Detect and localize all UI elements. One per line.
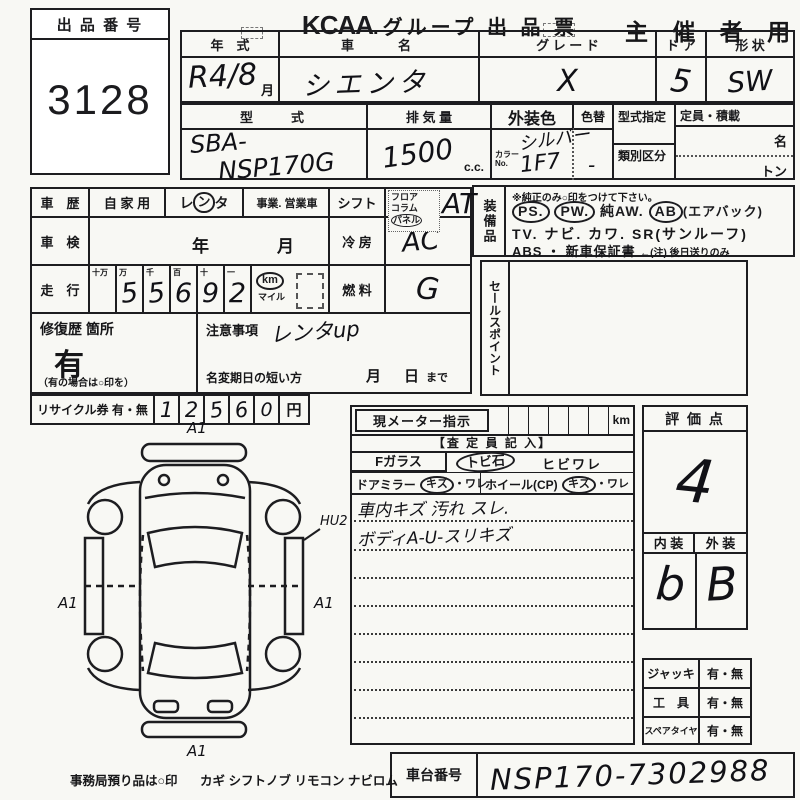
divider [352,472,633,473]
auction-sheet: 出 品 番 号 3128 KCAA.グループ 出 品 票 主 催 者 用 年 式… [0,0,800,800]
jack-label-cell: ジャッキ [644,660,700,689]
car-name-value: シエンタ [301,60,430,103]
model-code-label: 型 式 [182,105,366,130]
displacement-unit: c.c. [464,160,484,174]
capacity-tons-unit: トン [761,161,787,180]
rename-month-unit: 月 [366,365,381,386]
type-class-divider [614,143,674,145]
grade-label: グ レ ー ド [480,32,655,58]
rename-deadline-label: 名変期日の短い方 [206,369,302,386]
shift-option-floor: フロア [391,192,437,203]
equipment-box: 装備品 ※純正のみ○印をつけて下さい。 PS. PW. 純AW. AB(エアバッ… [472,185,795,257]
rename-until-label: まで [426,369,448,385]
shift-value: AT [442,187,476,220]
wheel-rear-left [88,637,122,671]
damage-mark-hu2: HU2 [320,514,347,529]
mileage-header-100k: 十万 [90,266,115,278]
color-cell: 外装色 色替 シルバー カラー No. 1F7 - [490,103,614,180]
spare-tire-label: スペアタイヤ [644,718,698,743]
door-cell: ド ア 5 [655,30,707,103]
wiper-dot-left [159,475,169,485]
rename-day-unit: 日 [404,365,419,386]
mileage-header-100: 百 [171,266,196,278]
wheel-damage-options: キズ・ワレ [562,474,629,494]
meter-unit: km [613,413,630,427]
mileage-cell-100k: 十万 [90,266,117,312]
recolor-value: - [588,153,595,177]
custody-note: 事務局預り品は○印 [70,774,178,788]
jack-label: ジャッキ [644,660,698,687]
exterior-label-cell: 外 装 [695,532,746,554]
fglass-label: Fガラス [352,451,445,470]
score-value: 4 [639,427,751,537]
assessor-comment-1: 車内キズ 汚れ スレ. [357,494,510,522]
chassis-label-cell: 車台番号 [392,754,478,796]
car-name-label: 車 名 [280,32,478,58]
shift-option-column: コラム [391,203,437,214]
aircon-label: 冷 房 [330,218,386,264]
mileage-cell-100: 百 6 [171,266,198,312]
ruled-line [354,633,633,635]
fuel-row: 燃 料 G [328,264,472,314]
ruled-line [354,661,633,663]
mileage-unit-km: km [256,272,284,290]
fglass-label-box: Fガラス [352,451,447,472]
equipment-ps: PS. [512,201,550,223]
fender-front-left [88,482,140,504]
car-body-outline [140,465,250,718]
color-no-value: 1F7 [519,149,562,178]
capacity-divider [676,155,793,157]
mileage-unit-cell: km マイル [252,266,294,312]
inspection-row: 車 検 年 月 [30,216,330,266]
equipment-line3-note: ←(注) 後日送りのみ [640,248,729,259]
meter-cell [529,407,549,434]
displacement-cell: 排 気 量 1500 c.c. [366,103,492,180]
chassis-label: 車台番号 [392,754,476,796]
accessories-table: ジャッキ 有・無 工 具 有・無 スペアタイヤ 有・無 [642,658,752,745]
year-cell: 年 式 R4/8 月 [180,30,280,103]
sales-point-label: セールスポイント [482,262,510,394]
custody-items: カギ シフトノブ リモコン ナビロム [200,774,398,788]
windshield [148,527,242,567]
equipment-ab-note: (エアバック) [683,204,763,219]
equipment-line1: PS. PW. 純AW. AB(エアバック) [512,201,763,223]
meter-cell [569,407,589,434]
hu2-pointer-line [304,529,320,540]
history-label: 車 歴 [32,189,90,216]
repair-cell: 修復歴 箇所 有 （有の場合は○印を） [30,312,198,394]
interior-label: 内 装 [644,532,693,552]
assessor-title: 【査 定 員 記 入】 [352,434,633,451]
capacity-label: 定員・積載 [676,105,793,127]
spare-tire-label-cell: スペアタイヤ [644,718,700,743]
fuel-label: 燃 料 [330,266,386,312]
capacity-persons-unit: 名 [774,131,787,150]
wheel-front-left [88,500,122,534]
grade-cell: グ レ ー ド X [478,30,657,103]
interior-score-value: b [654,556,687,612]
interior-label-cell: 内 装 [644,532,695,554]
equipment-ab: AB [649,201,683,223]
shape-value: SW [706,55,795,107]
mirror-crack-option: ・ワレ [454,478,487,490]
mileage-digit-100k [90,278,115,308]
tools-options-cell: 有・無 [700,689,750,718]
meter-cell [589,407,609,434]
equipment-pw: PW. [554,201,595,223]
shape-label: 形 状 [707,32,793,58]
repair-label: 修復歴 箇所 [40,319,114,339]
mirror-scratch-circled: キズ [420,476,454,494]
type-designation-cell: 型式指定 類別区分 [612,103,676,180]
divider-vertical [480,472,481,493]
tools-options: 有・無 [700,689,750,716]
tail-light-left [154,701,178,712]
meter-label: 現メーター指示 [357,411,487,430]
shift-option-panel: パネル [391,214,422,227]
year-value: R4/8 [187,57,258,96]
stone-chip-circled: トビ石 [455,450,515,474]
tail-light-right [208,701,232,712]
tools-label: 工 具 [644,689,698,716]
mileage-cell-10k: 万 5 [117,266,144,312]
door-label: ド ア [657,32,705,58]
mirror-damage-options: キズ・ワレ [420,474,487,494]
meter-cell [509,407,529,434]
equipment-aw: 純AW. [600,203,644,219]
mileage-digit-10k: 5 [116,277,144,309]
mileage-digit-1: 2 [225,278,250,308]
history-private-option: 自 家 用 [90,189,164,216]
caution-cell: 注意事項 レンタup 名変期日の短い方 月 日 まで [196,312,472,394]
ruled-line [354,577,633,579]
damage-mark-left: A1 [57,594,78,612]
damage-mark-right: A1 [313,594,334,612]
displacement-value: 1500 [380,132,455,175]
wheel-label: ホイール(CP) [485,476,558,493]
hood-line [145,493,245,498]
rear-window [148,643,242,678]
equipment-label: 装備品 [474,187,506,255]
mileage-header-10: 十 [198,266,223,278]
sales-point-box: セールスポイント [480,260,748,396]
exhibit-number-value: 3128 [32,40,168,160]
tools-label-cell: 工 具 [644,689,700,718]
shift-row: シフト フロア コラム パネル AT [328,187,472,218]
assessor-comment-2: ボディA-U-スリキズ [357,520,512,550]
fender-rear-right [248,668,300,690]
year-label: 年 式 [182,32,278,58]
shift-label: シフト [330,189,386,216]
grade-value: X [480,58,655,104]
rear-bumper [142,722,246,737]
divider-vertical [695,554,697,628]
ruled-line [354,549,633,551]
rental-circle-mark: ン [193,192,214,212]
history-rental-option: レンタ [164,189,244,216]
mileage-cell-1k: 千 5 [144,266,171,312]
wheel-crack-option: ・ワレ [596,478,629,490]
mileage-digit-10: 9 [198,278,223,308]
score-box: 評 価 点 4 内 装 外 装 b B [642,405,748,630]
mileage-digit-1k: 5 [143,277,171,309]
inspection-year-unit: 年 [192,232,209,257]
meter-label-box: 現メーター指示 [355,409,489,432]
front-bumper [142,444,246,461]
mirror-label: ドアミラー [356,476,416,493]
ruled-line [354,605,633,607]
mileage-row: 走 行 十万 万 5 千 5 百 6 十 9 一 2 km マイル [30,264,330,314]
wiper-dot-right [218,475,228,485]
history-row: 車 歴 自 家 用 レンタ 事業. 営業車 [30,187,330,218]
ruled-line [354,689,633,691]
mileage-cell-10: 十 9 [198,266,225,312]
mileage-stamp-box [296,273,324,309]
meter-cell [549,407,569,434]
chassis-row: 車台番号 NSP170-7302988 [390,752,795,798]
shape-cell: 形 状 SW [705,30,795,103]
wheel-front-right [266,500,300,534]
door-value: 5 [654,55,708,107]
history-business-option: 事業. 営業車 [244,189,330,216]
model-code-cell: 型 式 SBA- NSP170G [180,103,368,180]
mileage-digit-1-header: 一 [225,266,250,278]
damage-mark-top: A1 [186,419,207,437]
chassis-value: NSP170-7302988 [489,753,771,797]
inspection-month-unit: 月 [277,232,294,257]
mileage-unit-mile: マイル [252,290,294,303]
caution-value: レンタup [269,313,361,349]
color-no-label2: No. [495,160,519,169]
fglass-crack-option: ヒビワレ [542,454,602,473]
meter-cell [489,407,509,434]
class-label: 類別区分 [618,147,666,164]
assessor-table: 現メーター指示 km 【査 定 員 記 入】 Fガラス トビ石 ヒビワレ ドアミ… [350,405,635,745]
capacity-cell: 定員・積載 名 トン [674,103,795,180]
exhibit-number-label: 出 品 番 号 [32,10,168,40]
mileage-digit-100: 6 [171,278,196,308]
shift-options: フロア コラム パネル [388,190,440,232]
repair-note: （有の場合は○印を） [38,374,134,389]
exhibit-number-box: 出 品 番 号 3128 [30,8,170,175]
equipment-line3: ABS ・ 新車保証書 ←(注) 後日送りのみ [512,241,730,261]
type-designation-label: 型式指定 [618,108,666,125]
wheel-rear-right [266,637,300,671]
car-name-cell: 車 名 シエンタ [278,30,480,103]
month-unit: 月 [261,80,274,99]
mileage-cell-1: 一 2 [225,266,252,312]
exterior-label: 外 装 [695,532,746,552]
fender-rear-left [88,668,140,690]
fglass-stone-option: トビ石 [456,452,515,472]
wheel-scratch-circled: キズ [562,476,596,494]
caution-label: 注意事項 [206,320,258,339]
footer-note: 事務局預り品は○印 カギ シフトノブ リモコン ナビロム [70,770,398,790]
jack-options-cell: 有・無 [700,660,750,689]
mileage-label: 走 行 [32,266,90,312]
spare-tire-options: 有・無 [700,718,750,743]
fuel-value: G [415,271,441,308]
equipment-abs-warranty: ABS ・ 新車保証書 [512,244,636,259]
rental-char3: タ [215,193,229,213]
car-diagram: A1 A1 A1 A1 HU2 [42,418,347,762]
fender-front-right [248,482,300,504]
displacement-label: 排 気 量 [368,105,490,130]
damage-mark-bottom: A1 [186,742,207,760]
rental-char1: レ [179,193,193,213]
spare-tire-options-cell: 有・無 [700,718,750,743]
meter-digit-cells [489,407,609,434]
jack-options: 有・無 [700,660,750,687]
exterior-score-value: B [705,556,739,612]
inspection-label: 車 検 [32,218,90,264]
ruled-line [354,717,633,719]
